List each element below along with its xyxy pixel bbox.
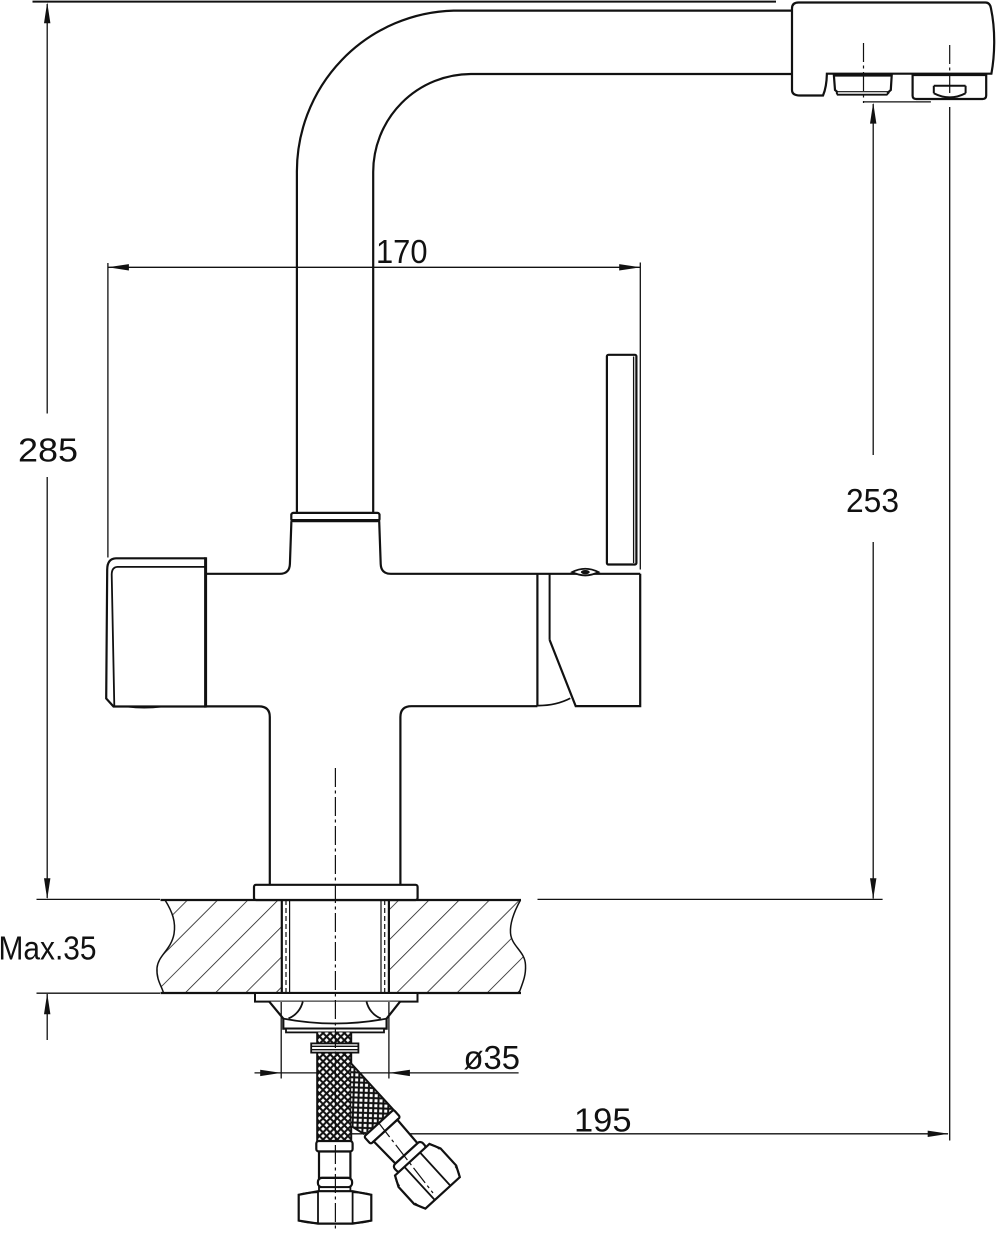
svg-text:ø35: ø35 xyxy=(464,1039,521,1076)
svg-text:170: 170 xyxy=(376,233,428,270)
svg-text:285: 285 xyxy=(18,432,78,469)
svg-text:195: 195 xyxy=(574,1102,632,1139)
svg-text:Max.35: Max.35 xyxy=(0,930,97,967)
svg-text:253: 253 xyxy=(846,482,899,519)
